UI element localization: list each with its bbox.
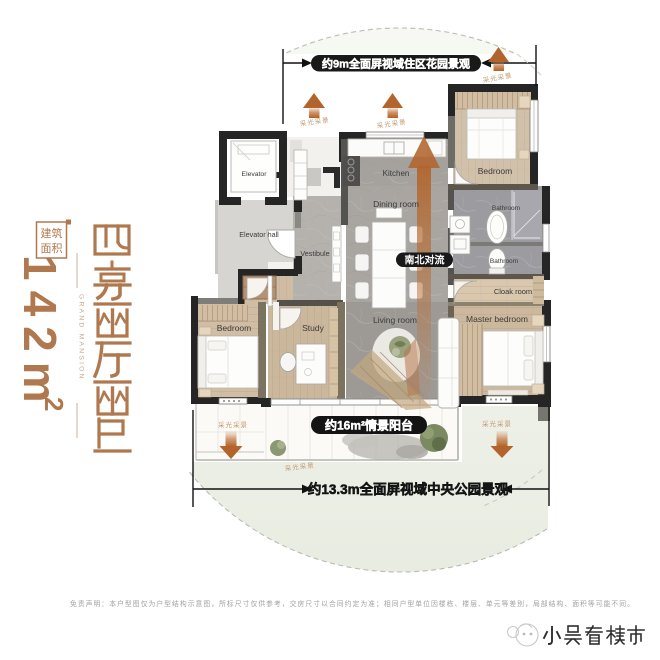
svg-text:Dining room: Dining room	[373, 199, 419, 209]
svg-text:GRAND MANSION: GRAND MANSION	[78, 294, 85, 381]
svg-text:南北对流: 南北对流	[405, 254, 445, 267]
svg-text:约13.3m全面屏视域中央公园景观: 约13.3m全面屏视域中央公园景观	[308, 481, 509, 497]
svg-text:Cloak room: Cloak room	[494, 287, 532, 296]
svg-text:Bedroom: Bedroom	[217, 323, 252, 333]
svg-text:Living room: Living room	[373, 315, 417, 325]
svg-text:Kitchen: Kitchen	[383, 169, 410, 178]
svg-text:142m: 142m	[14, 255, 66, 413]
svg-text:Vestibule: Vestibule	[300, 249, 329, 258]
svg-text:面积: 面积	[41, 242, 63, 255]
svg-text:Bathroom: Bathroom	[490, 258, 518, 265]
svg-text:Elevator hall: Elevator hall	[239, 230, 279, 239]
svg-text:Elevator: Elevator	[242, 171, 268, 178]
svg-text:约9m全面屏视域住区花园景观: 约9m全面屏视域住区花园景观	[322, 57, 470, 71]
svg-text:免责声明：本户型图仅为户型结构示意图，所标尺寸仅供参考，交房: 免责声明：本户型图仅为户型结构示意图，所标尺寸仅供参考，交房尺寸以合同约定为准；…	[70, 599, 635, 608]
svg-text:Study: Study	[302, 323, 324, 333]
svg-text:Master bedroom: Master bedroom	[466, 314, 528, 324]
svg-text:2: 2	[39, 397, 69, 411]
svg-text:Bedroom: Bedroom	[478, 166, 513, 176]
svg-text:约16m²情景阳台: 约16m²情景阳台	[325, 418, 413, 433]
svg-text:Bathroom: Bathroom	[492, 205, 520, 212]
svg-text:建筑: 建筑	[41, 226, 63, 240]
svg-text:采光采景: 采光采景	[218, 420, 248, 429]
svg-text:采光采景: 采光采景	[482, 419, 512, 428]
